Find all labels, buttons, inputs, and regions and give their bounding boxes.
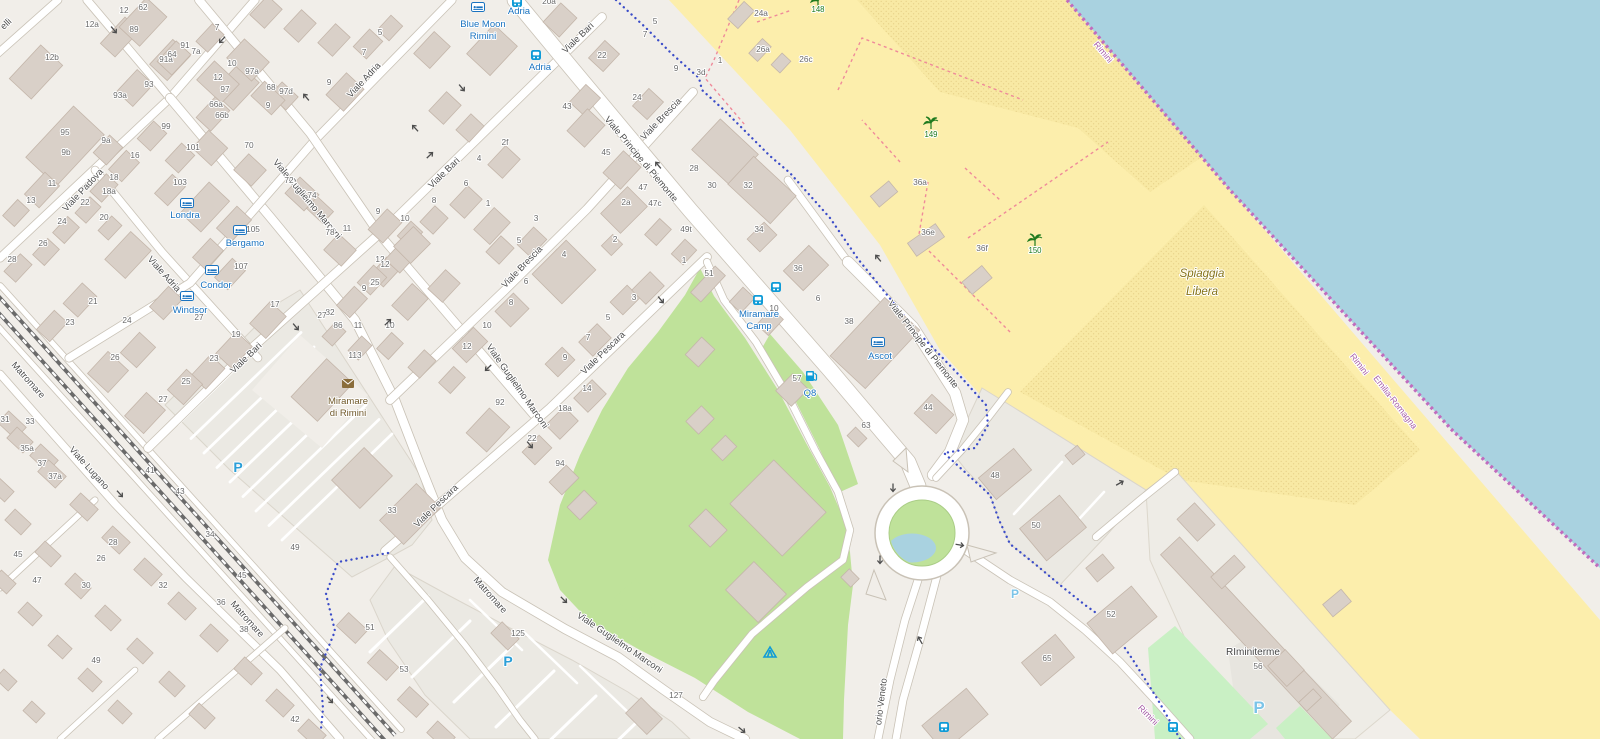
svg-text:22: 22: [80, 197, 90, 207]
svg-text:127: 127: [669, 690, 683, 700]
svg-text:P: P: [1253, 698, 1264, 717]
svg-text:11: 11: [343, 223, 352, 233]
svg-text:10: 10: [400, 213, 410, 223]
svg-text:97a: 97a: [245, 66, 259, 76]
svg-text:82: 82: [325, 307, 335, 317]
svg-text:P: P: [503, 653, 512, 669]
svg-text:26a: 26a: [756, 44, 770, 54]
svg-text:2a: 2a: [621, 197, 631, 207]
svg-text:2: 2: [613, 234, 618, 244]
svg-text:37: 37: [37, 458, 47, 468]
svg-text:44: 44: [923, 402, 933, 412]
svg-text:34: 34: [754, 224, 764, 234]
svg-text:148: 148: [811, 5, 824, 14]
svg-text:86: 86: [333, 320, 343, 330]
svg-text:91: 91: [180, 40, 190, 50]
svg-text:101: 101: [186, 142, 200, 152]
svg-text:22: 22: [527, 433, 537, 443]
svg-text:34: 34: [205, 529, 215, 539]
svg-text:38: 38: [239, 624, 249, 634]
svg-text:Blue Moon: Blue Moon: [460, 19, 505, 30]
svg-text:22: 22: [597, 50, 607, 60]
svg-text:95: 95: [60, 127, 70, 137]
svg-text:103: 103: [173, 177, 187, 187]
svg-text:1: 1: [486, 198, 491, 208]
svg-text:19: 19: [231, 329, 241, 339]
svg-text:Adria: Adria: [508, 6, 531, 17]
svg-text:23: 23: [65, 317, 75, 327]
svg-text:24a: 24a: [754, 8, 768, 18]
svg-text:Londra: Londra: [170, 210, 200, 221]
svg-text:Spiaggia: Spiaggia: [1180, 268, 1225, 280]
svg-text:23: 23: [209, 353, 219, 363]
svg-text:18: 18: [109, 172, 119, 182]
svg-text:12: 12: [380, 259, 390, 269]
svg-text:26: 26: [96, 553, 106, 563]
svg-text:53: 53: [399, 664, 409, 674]
svg-text:28: 28: [7, 254, 17, 264]
svg-text:Bergamo: Bergamo: [226, 238, 265, 249]
svg-text:70: 70: [244, 140, 254, 150]
svg-text:24: 24: [57, 216, 67, 226]
svg-text:32: 32: [743, 180, 753, 190]
svg-text:4: 4: [477, 153, 482, 163]
svg-text:72: 72: [284, 175, 294, 185]
svg-text:33: 33: [387, 505, 397, 515]
svg-text:33: 33: [25, 416, 35, 426]
svg-text:di Rimini: di Rimini: [330, 408, 366, 419]
svg-text:57: 57: [792, 373, 802, 383]
svg-text:9b: 9b: [61, 147, 71, 157]
svg-text:3: 3: [632, 292, 637, 302]
svg-text:49t: 49t: [680, 224, 692, 234]
svg-text:26: 26: [110, 352, 120, 362]
svg-text:24: 24: [632, 92, 642, 102]
svg-text:107: 107: [234, 261, 248, 271]
svg-text:Camp: Camp: [746, 321, 771, 332]
svg-text:20a: 20a: [542, 0, 556, 6]
svg-text:8: 8: [509, 297, 514, 307]
svg-text:37a: 37a: [48, 471, 62, 481]
svg-text:68: 68: [266, 82, 276, 92]
svg-text:125: 125: [511, 628, 525, 638]
svg-text:9: 9: [266, 100, 271, 110]
svg-text:Ascot: Ascot: [868, 351, 892, 362]
svg-text:26c: 26c: [799, 54, 812, 64]
svg-text:51: 51: [365, 622, 375, 632]
svg-text:48: 48: [990, 470, 1000, 480]
svg-text:18a: 18a: [102, 186, 116, 196]
svg-text:97d: 97d: [279, 86, 293, 96]
svg-text:11: 11: [354, 320, 363, 330]
svg-text:4: 4: [562, 249, 567, 259]
svg-text:9: 9: [674, 63, 679, 73]
svg-text:105: 105: [246, 224, 260, 234]
svg-text:56: 56: [1253, 661, 1263, 671]
svg-text:21: 21: [88, 296, 98, 306]
svg-text:65: 65: [1042, 653, 1052, 663]
svg-text:Condor: Condor: [200, 280, 231, 291]
svg-text:150: 150: [1028, 246, 1042, 255]
svg-text:30: 30: [81, 580, 91, 590]
svg-text:30: 30: [707, 180, 717, 190]
svg-text:99: 99: [161, 121, 171, 131]
svg-text:1: 1: [682, 255, 687, 265]
svg-text:74: 74: [307, 190, 317, 200]
svg-text:Adria: Adria: [529, 62, 552, 73]
svg-text:7a: 7a: [191, 46, 201, 56]
svg-text:3: 3: [534, 213, 539, 223]
svg-text:25: 25: [181, 376, 191, 386]
svg-text:3d: 3d: [696, 67, 706, 77]
svg-text:10: 10: [482, 320, 492, 330]
svg-text:RIminiterme: RIminiterme: [1226, 647, 1280, 658]
svg-text:52: 52: [1106, 609, 1116, 619]
svg-text:9a: 9a: [101, 135, 111, 145]
svg-text:9: 9: [362, 283, 367, 293]
svg-text:97: 97: [220, 84, 230, 94]
svg-text:36: 36: [793, 263, 803, 273]
svg-text:41: 41: [145, 465, 155, 475]
svg-text:27: 27: [158, 394, 168, 404]
svg-text:26: 26: [38, 238, 48, 248]
svg-text:113: 113: [348, 350, 362, 360]
svg-text:12: 12: [213, 72, 223, 82]
svg-text:93: 93: [144, 79, 154, 89]
svg-text:42: 42: [290, 714, 300, 724]
svg-text:8: 8: [432, 195, 437, 205]
svg-text:32: 32: [158, 580, 168, 590]
svg-text:66b: 66b: [215, 110, 229, 120]
svg-text:7: 7: [643, 29, 648, 39]
svg-text:47: 47: [638, 182, 648, 192]
svg-text:13: 13: [26, 195, 36, 205]
svg-text:36: 36: [216, 597, 226, 607]
svg-text:47: 47: [32, 575, 42, 585]
svg-text:27: 27: [317, 310, 327, 320]
svg-text:Miramare: Miramare: [739, 309, 779, 320]
svg-text:6: 6: [464, 178, 469, 188]
svg-text:9: 9: [327, 77, 332, 87]
svg-text:45: 45: [237, 570, 247, 580]
svg-text:63: 63: [861, 420, 871, 430]
svg-text:2f: 2f: [502, 137, 510, 147]
svg-text:36e: 36e: [921, 227, 935, 237]
svg-text:47c: 47c: [648, 198, 661, 208]
svg-text:16: 16: [130, 150, 140, 160]
svg-text:49: 49: [290, 542, 300, 552]
svg-text:94: 94: [555, 458, 565, 468]
svg-text:28: 28: [108, 537, 118, 547]
svg-text:6: 6: [524, 276, 529, 286]
svg-text:17: 17: [270, 299, 280, 309]
svg-text:51: 51: [704, 268, 714, 278]
svg-text:49: 49: [91, 655, 101, 665]
svg-text:12b: 12b: [45, 52, 59, 62]
svg-text:14: 14: [582, 383, 592, 393]
svg-text:36a: 36a: [913, 177, 927, 187]
svg-text:7: 7: [362, 47, 367, 57]
svg-text:12: 12: [462, 341, 472, 351]
svg-text:62: 62: [138, 2, 148, 12]
svg-text:89: 89: [129, 24, 139, 34]
svg-text:66a: 66a: [209, 99, 223, 109]
svg-text:Windsor: Windsor: [173, 305, 208, 316]
svg-text:28: 28: [689, 163, 699, 173]
svg-text:5: 5: [517, 235, 522, 245]
svg-text:7: 7: [215, 22, 220, 32]
svg-text:38: 38: [844, 316, 854, 326]
svg-text:5: 5: [653, 16, 658, 26]
svg-text:20: 20: [99, 212, 109, 222]
svg-text:6: 6: [816, 293, 821, 303]
svg-text:25: 25: [370, 277, 380, 287]
svg-text:35a: 35a: [20, 443, 34, 453]
svg-text:45: 45: [601, 147, 611, 157]
svg-text:P: P: [1011, 587, 1019, 601]
svg-text:43: 43: [562, 101, 572, 111]
svg-text:12a: 12a: [85, 19, 99, 29]
svg-text:78: 78: [325, 227, 335, 237]
svg-text:92: 92: [495, 397, 505, 407]
svg-text:11: 11: [48, 178, 57, 188]
svg-text:24: 24: [122, 315, 132, 325]
svg-text:1: 1: [718, 55, 723, 65]
svg-text:50: 50: [1031, 520, 1041, 530]
svg-text:9: 9: [563, 352, 568, 362]
svg-text:P: P: [233, 459, 242, 475]
svg-text:Libera: Libera: [1186, 286, 1218, 298]
svg-text:45: 45: [13, 549, 23, 559]
svg-text:18a: 18a: [558, 403, 572, 413]
svg-text:Q8: Q8: [804, 388, 817, 399]
svg-text:36f: 36f: [976, 243, 988, 253]
svg-text:64: 64: [167, 49, 177, 59]
svg-text:Miramare: Miramare: [328, 396, 368, 407]
svg-text:Rimini: Rimini: [470, 31, 496, 42]
svg-text:43: 43: [175, 486, 185, 496]
svg-text:10: 10: [227, 58, 237, 68]
svg-text:93a: 93a: [113, 90, 127, 100]
svg-text:9: 9: [376, 206, 381, 216]
svg-text:5: 5: [378, 27, 383, 37]
svg-text:31: 31: [0, 414, 10, 424]
svg-text:5: 5: [606, 312, 611, 322]
svg-text:12: 12: [119, 5, 129, 15]
svg-text:7: 7: [586, 332, 591, 342]
svg-text:149: 149: [924, 130, 937, 139]
